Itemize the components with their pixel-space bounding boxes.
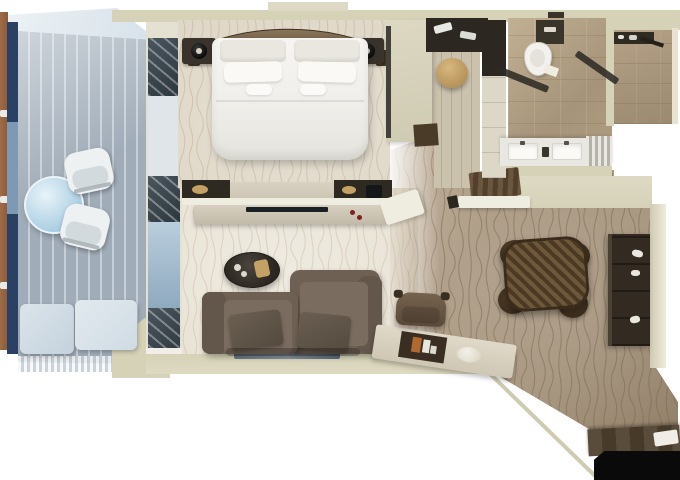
suite-floor-plan	[0, 0, 680, 480]
balcony-door-glass	[7, 122, 18, 214]
duvet-fold	[216, 100, 364, 102]
vanity-sink	[508, 143, 538, 160]
sofa-front-shadow	[226, 348, 360, 356]
bathroom-outer-wall	[672, 28, 678, 124]
round-dining-table	[502, 235, 591, 313]
shower-glass-front	[586, 136, 612, 166]
desk-card	[430, 345, 437, 354]
desk-card	[411, 337, 422, 353]
wall-end-wood	[413, 123, 438, 147]
dining-east-wall	[650, 204, 666, 368]
closet-item	[433, 22, 452, 34]
balcony-deck-edge	[18, 356, 118, 372]
balcony-lounger	[20, 300, 138, 354]
decor-red	[350, 210, 355, 215]
balcony-door-panel-top	[7, 22, 18, 122]
shower-room-floor	[612, 30, 674, 124]
dresser-box	[366, 185, 382, 198]
bottle	[631, 270, 640, 276]
window-slats	[148, 176, 180, 222]
vanity-sink	[552, 143, 582, 160]
serving-tray	[456, 346, 482, 364]
dining-north-wall	[518, 176, 652, 208]
chair-armrest	[441, 292, 450, 300]
bed-accent-pillow	[246, 84, 272, 95]
table-lamp	[191, 43, 207, 59]
entry-doorway	[594, 451, 680, 480]
desk-chair	[395, 292, 447, 328]
toilet-tank	[536, 20, 564, 44]
vanity-accessory	[542, 147, 549, 157]
lounger-cushion	[75, 300, 137, 350]
dresser-tray	[342, 186, 356, 194]
top-wall-notch	[268, 2, 348, 11]
wall-edge	[386, 26, 391, 138]
sofa-pillow	[296, 311, 351, 352]
lamp-shade	[196, 48, 202, 54]
sofa-pillow	[228, 309, 284, 351]
console-wall-top	[182, 198, 406, 205]
faucet	[564, 141, 569, 145]
media-console	[194, 205, 388, 224]
bottle	[629, 315, 640, 324]
door-edge	[447, 195, 459, 209]
balcony-door-panel-bottom	[7, 214, 18, 354]
cabinet-edge	[608, 234, 612, 346]
chair-seat	[401, 306, 440, 324]
bed-pillow	[298, 61, 357, 83]
closet-item	[460, 31, 477, 41]
shower-control	[618, 35, 624, 39]
bottle	[631, 249, 643, 259]
sofa-armrest	[202, 292, 226, 354]
tv	[246, 207, 328, 212]
chair-armrest	[394, 290, 403, 298]
dresser-tray	[192, 185, 208, 194]
desk-blotter	[398, 331, 447, 364]
corridor-wall-ledge	[458, 196, 530, 208]
bed-pillow	[294, 40, 360, 62]
bed-accent-pillow	[300, 84, 326, 95]
faucet	[520, 141, 525, 145]
shower-head	[629, 35, 637, 40]
window-slats	[148, 38, 180, 96]
round-ottoman	[436, 58, 468, 88]
top-wall-bathroom	[612, 10, 680, 30]
decor-red	[357, 215, 362, 220]
lounger-cushion	[20, 304, 74, 354]
closet-shelf-unit	[426, 18, 488, 52]
bar-cabinet	[608, 234, 650, 346]
flush-plate	[544, 27, 556, 32]
nightstand-left	[182, 38, 216, 64]
bed-pillow	[220, 40, 286, 62]
two-seat-sofa	[202, 268, 382, 358]
glass-door	[148, 222, 180, 308]
toilet-seat	[530, 49, 545, 67]
bed-pillow	[224, 61, 283, 83]
window-glass	[148, 96, 180, 176]
window-wall	[146, 10, 182, 362]
double-bed	[212, 38, 368, 160]
